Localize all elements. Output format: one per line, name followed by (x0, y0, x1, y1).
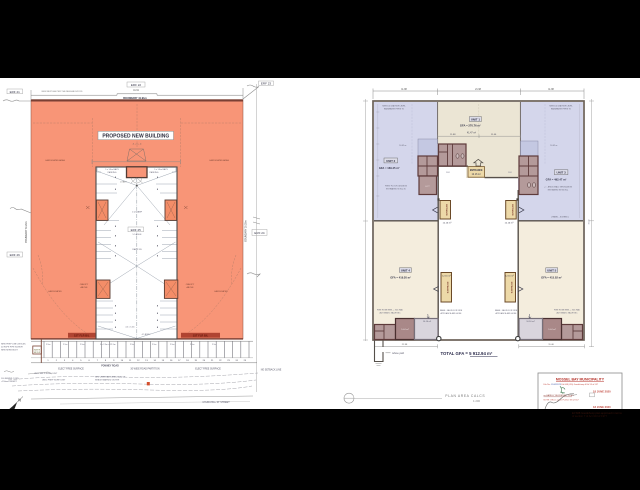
svg-text:NOTE: Offices under Further SG: NOTE: Offices under Further SG of 557 (544, 398, 580, 401)
svg-text:File No: 15/4/2/3/29 Erf 668: File No: 15/4/2/3/29 Erf 668 (455) Goede… (544, 384, 599, 386)
svg-text:UNG. PREP SURF. DIST: UNG. PREP SURF. DIST (42, 379, 66, 381)
svg-text:NEW BDRY AS PER THE NEIGHBOUR: NEW BDRY AS PER THE NEIGHBOUR RD (42, 90, 83, 93)
svg-text:SPACE MARKED OUTER: SPACE MARKED OUTER (95, 379, 120, 382)
svg-text:16.62 m²: 16.62 m² (399, 144, 407, 147)
svg-text:4.5 BDRY: 4.5 BDRY (142, 334, 152, 336)
svg-text:2.5m: 2.5m (170, 344, 175, 346)
svg-text:ENTRANCE: ENTRANCE (510, 282, 513, 294)
svg-text:2.5m: 2.5m (130, 344, 135, 346)
svg-text:30 WIDE ROAD PARTITION: 30 WIDE ROAD PARTITION (130, 368, 159, 371)
svg-text:( PANEL - SCREED ): ( PANEL - SCREED ) (551, 216, 569, 219)
svg-text:ABOVE: ABOVE (81, 286, 89, 289)
svg-text:20 HDPE PIPE SLEEVE: 20 HDPE PIPE SLEEVE (1, 347, 23, 349)
svg-text:2.5m: 2.5m (46, 344, 51, 346)
svg-text:POWNEY ROAD: POWNEY ROAD (101, 364, 119, 367)
svg-text:11.46: 11.46 (548, 344, 554, 346)
svg-text:ELECT FREE SURFACE: ELECT FREE SURFACE (58, 368, 84, 371)
svg-text:UNIT 3: UNIT 3 (557, 171, 567, 175)
svg-text:41.91: 41.91 (133, 90, 139, 92)
svg-text:ENTRANCE: ENTRANCE (470, 169, 483, 172)
svg-text:39.29: 39.29 (589, 219, 591, 225)
svg-text:UNG. HELD SURF. DIST: UNG. HELD SURF. DIST (34, 373, 58, 375)
svg-text:MOSSEL BAY MUNICIPALITY: MOSSEL BAY MUNICIPALITY (556, 378, 605, 382)
svg-text:21.98: 21.98 (475, 89, 481, 91)
svg-text:NEW 100 DIA HIGH LEVEL: NEW 100 DIA HIGH LEVEL (549, 105, 572, 108)
svg-text:AUTOMATIC VALVE INC: AUTOMATIC VALVE INC (379, 312, 401, 315)
svg-text:5 x 1.8m BAYS: 5 x 1.8m BAYS (154, 168, 168, 171)
svg-text:AUTOMATIC VALVE INC: AUTOMATIC VALVE INC (556, 312, 578, 315)
svg-text:UNIT 2: UNIT 2 (386, 159, 396, 163)
svg-text:LANDSCAPED: LANDSCAPED (48, 290, 62, 293)
svg-text:NEW PREP LINE 20KV A/C: NEW PREP LINE 20KV A/C (1, 343, 26, 346)
svg-text:18 JUNE 2020: 18 JUNE 2020 (593, 390, 611, 394)
svg-text:GFA = 169.45 m²: GFA = 169.45 m² (379, 166, 400, 170)
svg-text:PARKING: PARKING (108, 171, 117, 174)
svg-text:BOUNDARY 41.91m: BOUNDARY 41.91m (123, 97, 147, 100)
svg-text:PARKING: PARKING (150, 171, 159, 174)
svg-text:41.47 m²: 41.47 m² (467, 132, 476, 135)
svg-text:as HARDLY SECRETARY PLAN: as HARDLY SECRETARY PLAN (544, 394, 575, 397)
svg-text:ERF 21: ERF 21 (10, 90, 21, 94)
svg-text:11.46: 11.46 (491, 134, 497, 136)
svg-text:FIRE HOSE REEL + 30m RAD: FIRE HOSE REEL + 30m RAD (554, 309, 581, 312)
svg-text:12.16 m²: 12.16 m² (505, 221, 514, 224)
svg-text:12.16 m²: 12.16 m² (472, 173, 481, 176)
svg-text:PROPOSED NEW BUILDING: PROPOSED NEW BUILDING (102, 134, 169, 140)
svg-text:5 x 2.5m = 12.5m: 5 x 2.5m = 12.5m (100, 344, 116, 346)
svg-text:APPLIANCE AND HOSE: APPLIANCE AND HOSE (496, 312, 518, 315)
svg-text:FIRE HOSE REEL + 30m RAD: FIRE HOSE REEL + 30m RAD (377, 309, 404, 312)
svg-text:5.44 m²: 5.44 m² (548, 328, 556, 331)
svg-text:1ST FLR B/L: 1ST FLR B/L (74, 334, 90, 338)
svg-text:SEC UNSTEAD DIRECTION OF: SEC UNSTEAD DIRECTION OF (95, 376, 126, 379)
svg-text:LANDSCAPED AREA: LANDSCAPED AREA (209, 159, 229, 162)
svg-text:PLAN AREA CALCS: PLAN AREA CALCS (445, 394, 485, 398)
svg-text:SAME - VALVE FOR FIRE: SAME - VALVE FOR FIRE (440, 309, 463, 312)
svg-text:ERF 22: ERF 22 (131, 83, 142, 87)
svg-text:BOUNDARY 39.29m: BOUNDARY 39.29m (25, 221, 28, 242)
svg-text:ERF 24: ERF 24 (254, 231, 265, 235)
svg-text:18 JUNE 2020: 18 JUNE 2020 (593, 405, 611, 409)
svg-text:NEW 100 DIA HIGH LEVEL: NEW 100 DIA HIGH LEVEL (382, 105, 405, 108)
svg-text:10.16 m²: 10.16 m² (423, 320, 432, 323)
svg-text:METER: METER (34, 352, 41, 354)
svg-text:2.5m: 2.5m (190, 344, 195, 346)
svg-text:12.16 m²: 12.16 m² (505, 275, 514, 278)
svg-text:ENTRANCE: ENTRANCE (445, 204, 448, 216)
svg-text:NEW KERB INLET: NEW KERB INLET (1, 350, 19, 352)
svg-text:4 + 1 + 4: 4 + 1 + 4 (133, 144, 142, 146)
svg-text:16.62 m²: 16.62 m² (550, 144, 558, 147)
svg-text:100 SEWER CONN: 100 SEWER CONN (1, 378, 19, 380)
svg-text:CANOPY: CANOPY (80, 283, 89, 286)
svg-text:1:200: 1:200 (473, 399, 480, 403)
svg-text:UNIT 5: UNIT 5 (547, 268, 557, 272)
svg-text:5.5 AISLE: 5.5 AISLE (133, 233, 143, 236)
svg-text:GFA = 492.47 m²: GFA = 492.47 m² (546, 178, 567, 182)
svg-text:11.88: 11.88 (548, 89, 554, 91)
svg-text:FIRST FLOOR CEILINGS: FIRST FLOOR CEILINGS (385, 186, 408, 188)
svg-text:NO SETBACK LINE: NO SETBACK LINE (261, 369, 282, 372)
svg-text:21.98: 21.98 (402, 344, 408, 346)
svg-text:11.88: 11.88 (401, 89, 407, 91)
svg-text:+ / - BRICK WALL VENTILATION: + / - BRICK WALL VENTILATION (544, 186, 573, 189)
svg-text:5 x 1.8m BAYS: 5 x 1.8m BAYS (105, 168, 119, 171)
svg-text:10.16 m²: 10.16 m² (526, 320, 535, 323)
svg-text:ABOVE: ABOVE (187, 286, 195, 289)
svg-text:2.5m: 2.5m (63, 344, 68, 346)
svg-text:refuse yard: refuse yard (392, 352, 405, 355)
svg-text:APPLIANCE AND HOSE: APPLIANCE AND HOSE (441, 312, 463, 315)
svg-text:TOTAL GFA = 5 912.94 m²: TOTAL GFA = 5 912.94 m² (441, 351, 493, 356)
svg-text:ESTIMATED IN 900 SQ.: ESTIMATED IN 900 SQ. (548, 189, 569, 192)
svg-text:ENTRANCE: ENTRANCE (511, 204, 514, 216)
svg-text:RAINWATER PIPES TO: RAINWATER PIPES TO (384, 108, 405, 111)
svg-text:12.16 m²: 12.16 m² (443, 221, 452, 224)
svg-text:12.16 m²: 12.16 m² (442, 275, 451, 278)
svg-text:LANDSCAPED: LANDSCAPED (214, 290, 228, 293)
svg-text:CANOPY: CANOPY (186, 283, 195, 286)
svg-text:of section 7 of Act 103 of 197: of section 7 of Act 103 of 1977 (572, 414, 607, 418)
svg-text:4.5 x 5.5m: 4.5 x 5.5m (125, 327, 135, 329)
svg-text:GFA = 270.76 m²: GFA = 270.76 m² (460, 123, 481, 127)
svg-text:ENTRANCE: ENTRANCE (446, 282, 449, 294)
svg-text:1:12 RAMP: 1:12 RAMP (132, 211, 143, 214)
svg-text:CHURCHILL ST STREET: CHURCHILL ST STREET (202, 401, 230, 404)
svg-text:1ST FLR B/L: 1ST FLR B/L (193, 334, 209, 338)
svg-text:ERF 26: ERF 26 (10, 253, 21, 257)
svg-text:BOUNDARY 39.29m: BOUNDARY 39.29m (245, 220, 248, 241)
svg-text:UNIT 1: UNIT 1 (471, 118, 481, 122)
svg-text:5.44 m²: 5.44 m² (401, 328, 409, 331)
svg-text:2.5m: 2.5m (152, 344, 157, 346)
svg-text:ELECT FREE SURFACE: ELECT FREE SURFACE (195, 368, 221, 371)
svg-text:GFA = 415.02 m²: GFA = 415.02 m² (541, 276, 562, 280)
svg-text:RAMP DN: RAMP DN (132, 248, 142, 251)
svg-text:+150mm INVERT: +150mm INVERT (1, 381, 17, 383)
svg-text:11.88: 11.88 (450, 134, 456, 136)
svg-text:SAME - VALVE FOR FIRE: SAME - VALVE FOR FIRE (495, 309, 518, 312)
svg-text:ERF 25: ERF 25 (131, 228, 142, 232)
svg-text:ERF 23: ERF 23 (261, 82, 272, 86)
svg-text:2.5m: 2.5m (80, 344, 85, 346)
svg-text:GFA = 419.20 m²: GFA = 419.20 m² (390, 276, 411, 280)
svg-text:ESTIMATED 90 SQ. M.: ESTIMATED 90 SQ. M. (386, 188, 406, 191)
svg-text:UNIT 4: UNIT 4 (401, 268, 411, 272)
svg-text:LANDSCAPED AREA: LANDSCAPED AREA (45, 159, 65, 162)
svg-text:2.5m: 2.5m (212, 344, 217, 346)
svg-text:RAINWATER PIPES TO: RAINWATER PIPES TO (551, 108, 572, 111)
